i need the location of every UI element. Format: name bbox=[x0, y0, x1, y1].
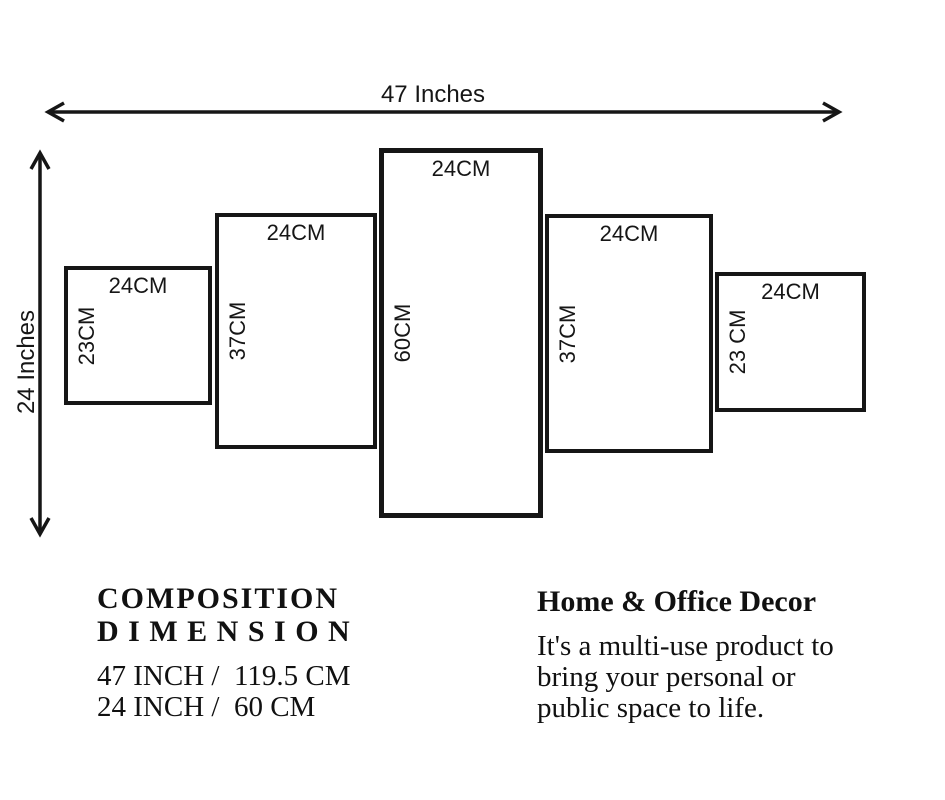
decor-heading: Home & Office Decor bbox=[537, 585, 834, 618]
panel-1-width-label: 24CM bbox=[68, 273, 208, 299]
decor-body: It's a multi-use product to bring your p… bbox=[537, 631, 834, 724]
panel-3-width-label: 24CM bbox=[384, 156, 538, 182]
panel-4: 24CM 37CM bbox=[545, 214, 713, 453]
decor-body-line-1: It's a multi-use product to bbox=[537, 631, 834, 662]
decor-body-line-3: public space to life. bbox=[537, 693, 834, 724]
panel-5-height-label: 23 CM bbox=[725, 310, 751, 375]
panel-1: 24CM 23CM bbox=[64, 266, 212, 405]
composition-row-inches-height: 24 INCH / 60 CM bbox=[97, 692, 351, 723]
panel-2: 24CM 37CM bbox=[215, 213, 377, 449]
composition-heading-line1: COMPOSITION bbox=[97, 582, 351, 615]
panel-1-height-label: 23CM bbox=[74, 306, 100, 365]
panel-2-width-label: 24CM bbox=[219, 220, 373, 246]
decor-block: Home & Office Decor It's a multi-use pro… bbox=[537, 585, 834, 724]
panel-4-height-label: 37CM bbox=[555, 304, 581, 363]
decor-body-line-2: bring your personal or bbox=[537, 662, 834, 693]
composition-row-inches-width: 47 INCH / 119.5 CM bbox=[97, 661, 351, 692]
composition-heading-line2: D I M E N S I O N bbox=[97, 615, 351, 648]
panel-4-width-label: 24CM bbox=[549, 221, 709, 247]
panel-5-width-label: 24CM bbox=[719, 279, 862, 305]
panel-5: 24CM 23 CM bbox=[715, 272, 866, 412]
composition-dimension-block: COMPOSITION D I M E N S I O N 47 INCH / … bbox=[97, 582, 351, 723]
composition-rows: 47 INCH / 119.5 CM 24 INCH / 60 CM bbox=[97, 661, 351, 723]
height-dimension-label: 24 Inches bbox=[13, 310, 41, 414]
panel-3: 24CM 60CM bbox=[379, 148, 543, 518]
panel-3-height-label: 60CM bbox=[390, 304, 416, 363]
width-dimension-label: 47 Inches bbox=[353, 82, 513, 108]
product-dimension-diagram: 47 Inches 24 Inches 24CM 23CM 24CM 37CM … bbox=[0, 0, 945, 800]
panel-2-height-label: 37CM bbox=[225, 302, 251, 361]
